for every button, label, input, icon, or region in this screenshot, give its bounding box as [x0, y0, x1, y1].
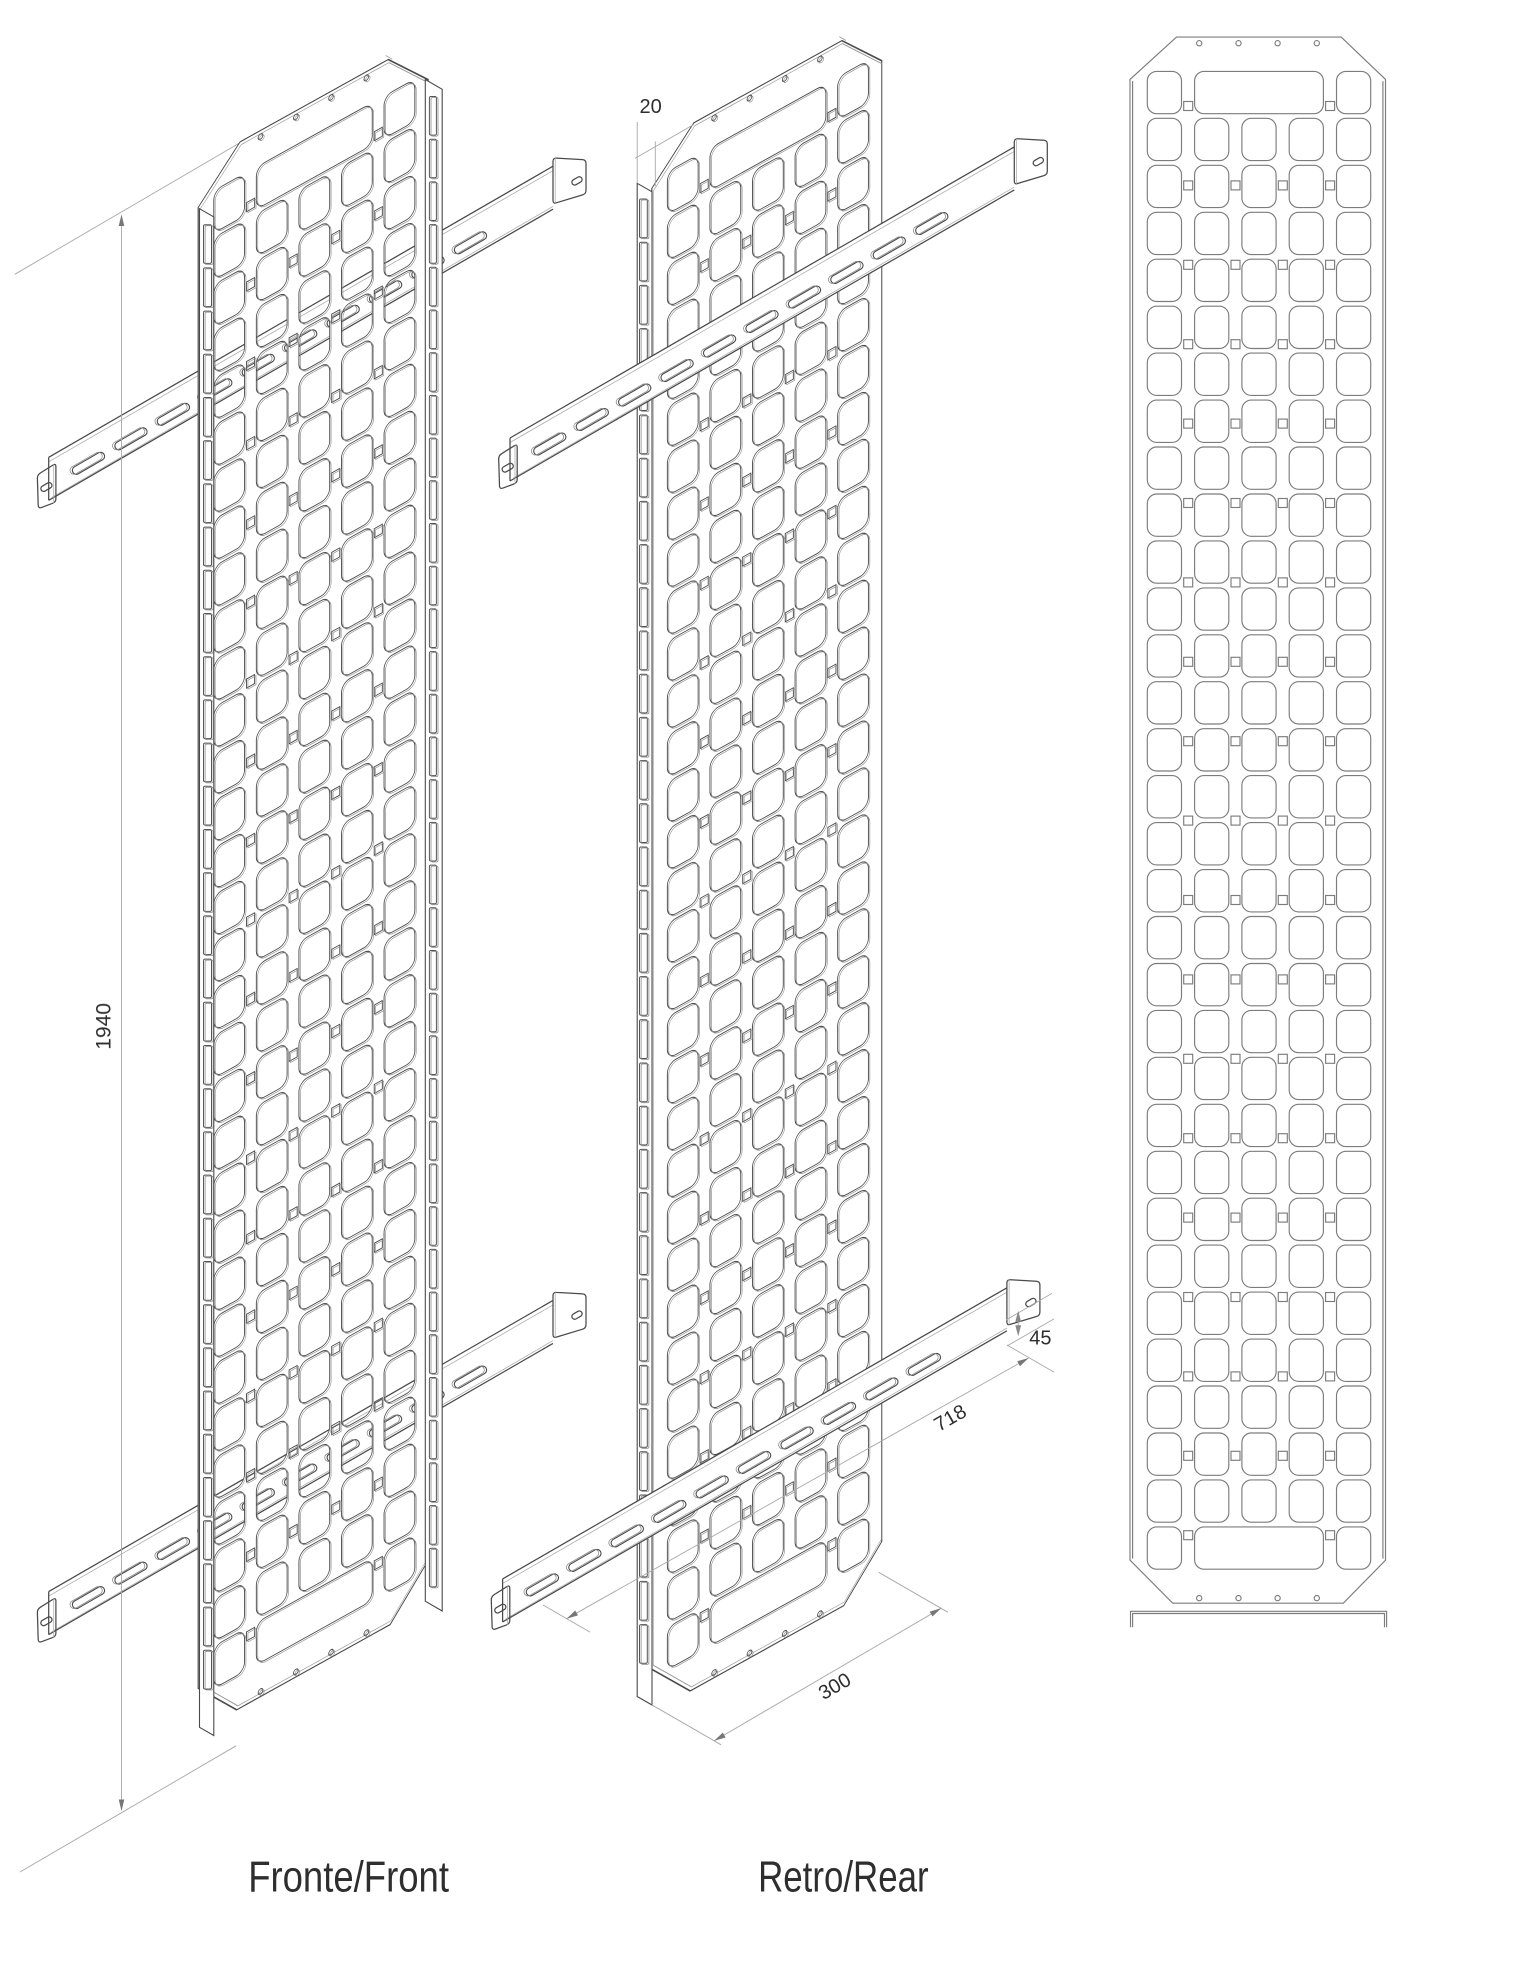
- svg-text:45: 45: [1029, 1327, 1051, 1349]
- svg-text:Retro/Rear: Retro/Rear: [758, 1853, 929, 1902]
- svg-text:1940: 1940: [93, 1003, 116, 1050]
- svg-text:20: 20: [639, 96, 661, 118]
- svg-text:Fronte/Front: Fronte/Front: [248, 1853, 449, 1902]
